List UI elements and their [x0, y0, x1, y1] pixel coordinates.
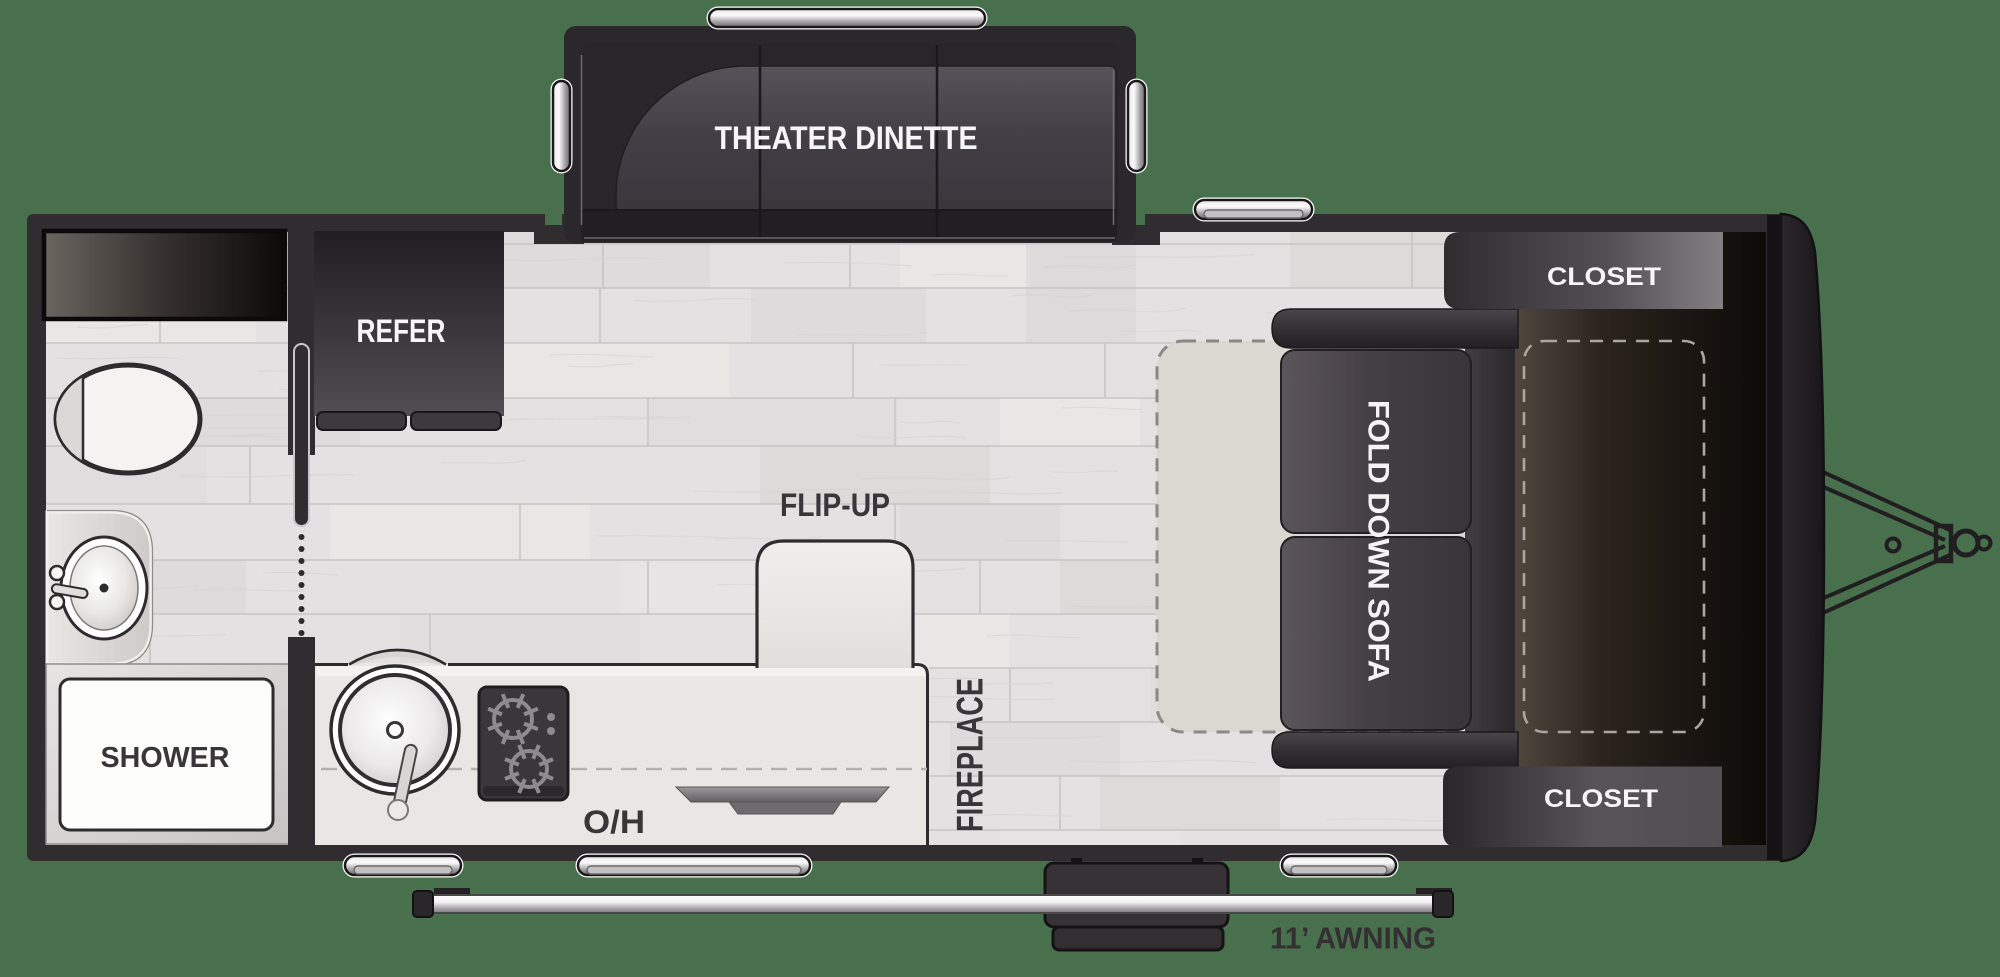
svg-text:THEATER DINETTE: THEATER DINETTE: [715, 120, 978, 156]
svg-text:11’ AWNING: 11’ AWNING: [1270, 921, 1436, 956]
svg-text:FIREPLACE: FIREPLACE: [950, 678, 991, 832]
svg-text:O/H: O/H: [583, 804, 645, 840]
svg-text:FLIP-UP: FLIP-UP: [780, 487, 890, 523]
svg-text:SHOWER: SHOWER: [101, 742, 230, 774]
svg-text:CLOSET: CLOSET: [1547, 263, 1661, 291]
svg-text:FOLD DOWN SOFA: FOLD DOWN SOFA: [1362, 400, 1395, 682]
svg-text:REFER: REFER: [357, 313, 446, 349]
svg-text:CLOSET: CLOSET: [1544, 785, 1658, 813]
